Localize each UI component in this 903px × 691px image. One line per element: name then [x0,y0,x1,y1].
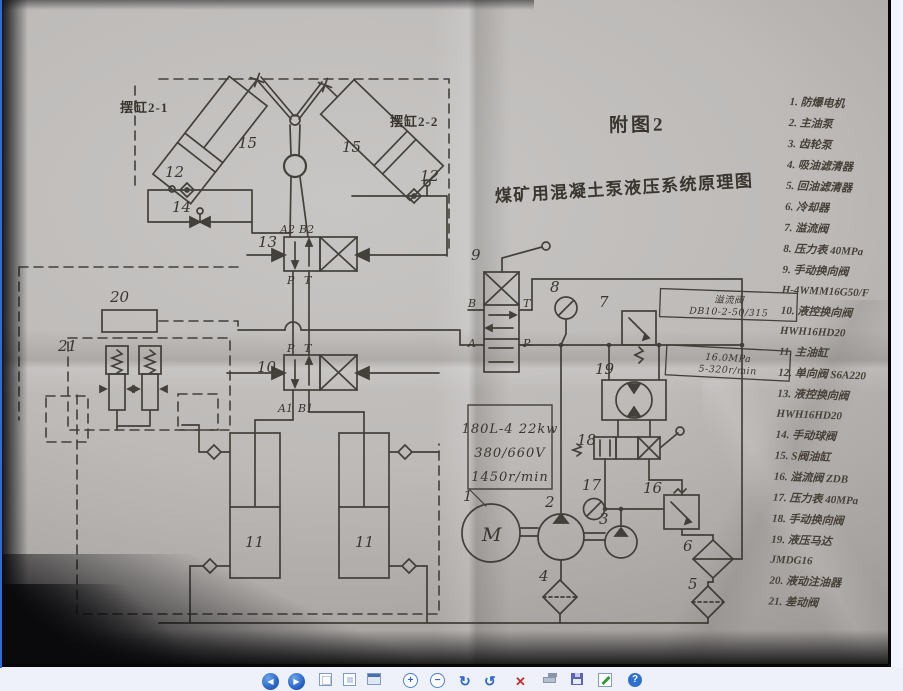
main-cylinder-right [339,433,389,578]
callout-11b: 11 [355,533,374,551]
relief-note-line-2: DB10-2-50/315 [688,306,768,320]
zoom-out-icon: − [430,673,445,688]
port-a1: A1 [277,402,293,415]
dashed-enclosure-bottom [77,395,439,614]
pipe-cross-line [238,322,468,345]
port-a: A [467,337,476,350]
zoom-out-button[interactable]: − [430,673,448,691]
port-p1: P [286,274,295,287]
window-margin-right [891,0,903,668]
callout-7: 7 [599,293,609,311]
ball-valve-14 [148,191,252,227]
callout-18: 18 [577,431,596,449]
cooler-6 [693,540,733,586]
callout-6: 6 [683,537,693,555]
copy-to-icon [571,673,583,685]
legend-item: 19. 液压马达 JMDG16 [770,530,884,575]
check-valve-12-right [352,186,447,256]
callout-12a: 12 [165,163,184,181]
actual-size-icon [343,673,356,686]
legend: 1. 防爆电机 2. 主油泵 3. 齿轮泵 4. 吸油滤清器 5. 回油滤清器 … [768,92,891,617]
callout-1: 1 [463,487,473,505]
callout-15b: 15 [342,138,361,156]
print-icon [543,673,561,683]
zoom-in-icon: + [403,673,418,688]
port-b1: B1 [297,402,313,415]
previous-image-button[interactable]: ◀ [262,673,280,691]
edit-button[interactable] [598,673,616,691]
callout-13: 13 [258,233,277,251]
help-button[interactable]: ? [628,673,646,691]
print-button[interactable] [543,673,561,691]
callout-19: 19 [595,360,615,378]
actual-size-button[interactable] [343,673,361,691]
port-a2: A2 [279,223,295,236]
relief-note-line-1: 溢流阀 [714,294,745,306]
differential-valve-21 [100,346,167,430]
port-p3: P [522,337,531,350]
slide-show-icon [367,673,381,685]
rotate-clockwise-button[interactable]: ↻ [459,673,477,691]
callout-17: 17 [582,476,602,494]
port-b2: B2 [298,223,314,236]
callout-10: 10 [257,358,277,376]
port-t1: T [304,274,313,287]
check-valve-12-left [148,183,291,233]
s-valve-linkage [248,71,334,237]
next-image-button[interactable]: ▶ [288,673,306,691]
cylinder-check-valves [182,425,439,623]
image-viewer-window: { "figure": { "title": "附图2", "subtitle"… [0,0,903,687]
callout-9: 9 [471,246,481,264]
relief-valve-7 [622,311,656,363]
pressure-gauge-17 [584,499,665,520]
legend-item: 9. 手动换向阀 H-4WMM16G50/F [781,260,891,305]
legend-item: 21. 差动阀 [768,592,881,617]
callout-5: 5 [688,575,698,593]
photo-canvas: 15 15 12 12 14 13 10 11 11 20 21 9 8 7 1… [2,0,891,667]
callout-12b: 12 [420,167,439,185]
port-t2: T [304,342,313,355]
hydraulic-motor-19 [602,345,666,437]
swing-cylinder-left-label: 摆缸2-1 [120,97,168,116]
slide-show-button[interactable] [367,673,385,691]
swing-cylinder-right-label: 摆缸2-2 [390,111,438,130]
callout-8: 8 [550,278,560,296]
callout-14: 14 [172,198,191,216]
callout-16: 16 [643,479,663,497]
motor-letter: M [481,524,502,546]
main-cylinder-left [230,433,280,578]
callout-21: 21 [57,337,77,355]
spec-line-3: 1450r/min [471,470,549,485]
viewer-toolbar: ◀ ▶ + − ↻ ↺ ✕ ? [0,668,903,687]
best-fit-button[interactable] [319,673,337,691]
callout-20: 20 [109,288,130,306]
help-icon: ? [628,673,642,687]
gear-pump-3 [584,509,637,558]
suction-filter-4 [543,580,577,623]
port-p2: P [286,342,295,355]
legend-item: 13. 液控换向阀 HWH16HD20 [776,384,890,429]
legend-item: 10. 液控换向阀 HWH16HD20 [780,301,891,346]
relief-valve-16 [664,489,713,540]
callout-4: 4 [538,567,549,585]
port-b: B [467,297,476,310]
delete-button[interactable]: ✕ [515,673,533,691]
window-border-left [0,0,2,687]
previous-image-icon: ◀ [262,673,279,690]
motor-note-line-2: 5-320r/min [698,363,757,377]
spec-line-2: 380/660V [474,446,546,461]
spec-line-1: 180L-4 22kw [462,422,559,437]
pressure-gauge-8 [555,297,577,345]
callout-2: 2 [544,493,555,511]
port-t3: T [523,297,532,310]
best-fit-icon [319,673,332,686]
callout-3: 3 [599,510,609,528]
rotate-counterclockwise-button[interactable]: ↺ [484,673,502,691]
edit-icon [598,673,612,687]
next-image-icon: ▶ [288,673,305,690]
callout-11a: 11 [245,533,264,551]
zoom-in-button[interactable]: + [403,673,421,691]
figure-number: 附图2 [609,110,666,138]
copy-to-button[interactable] [571,673,589,691]
callout-15a: 15 [238,134,257,152]
lubricator-20 [102,310,157,332]
